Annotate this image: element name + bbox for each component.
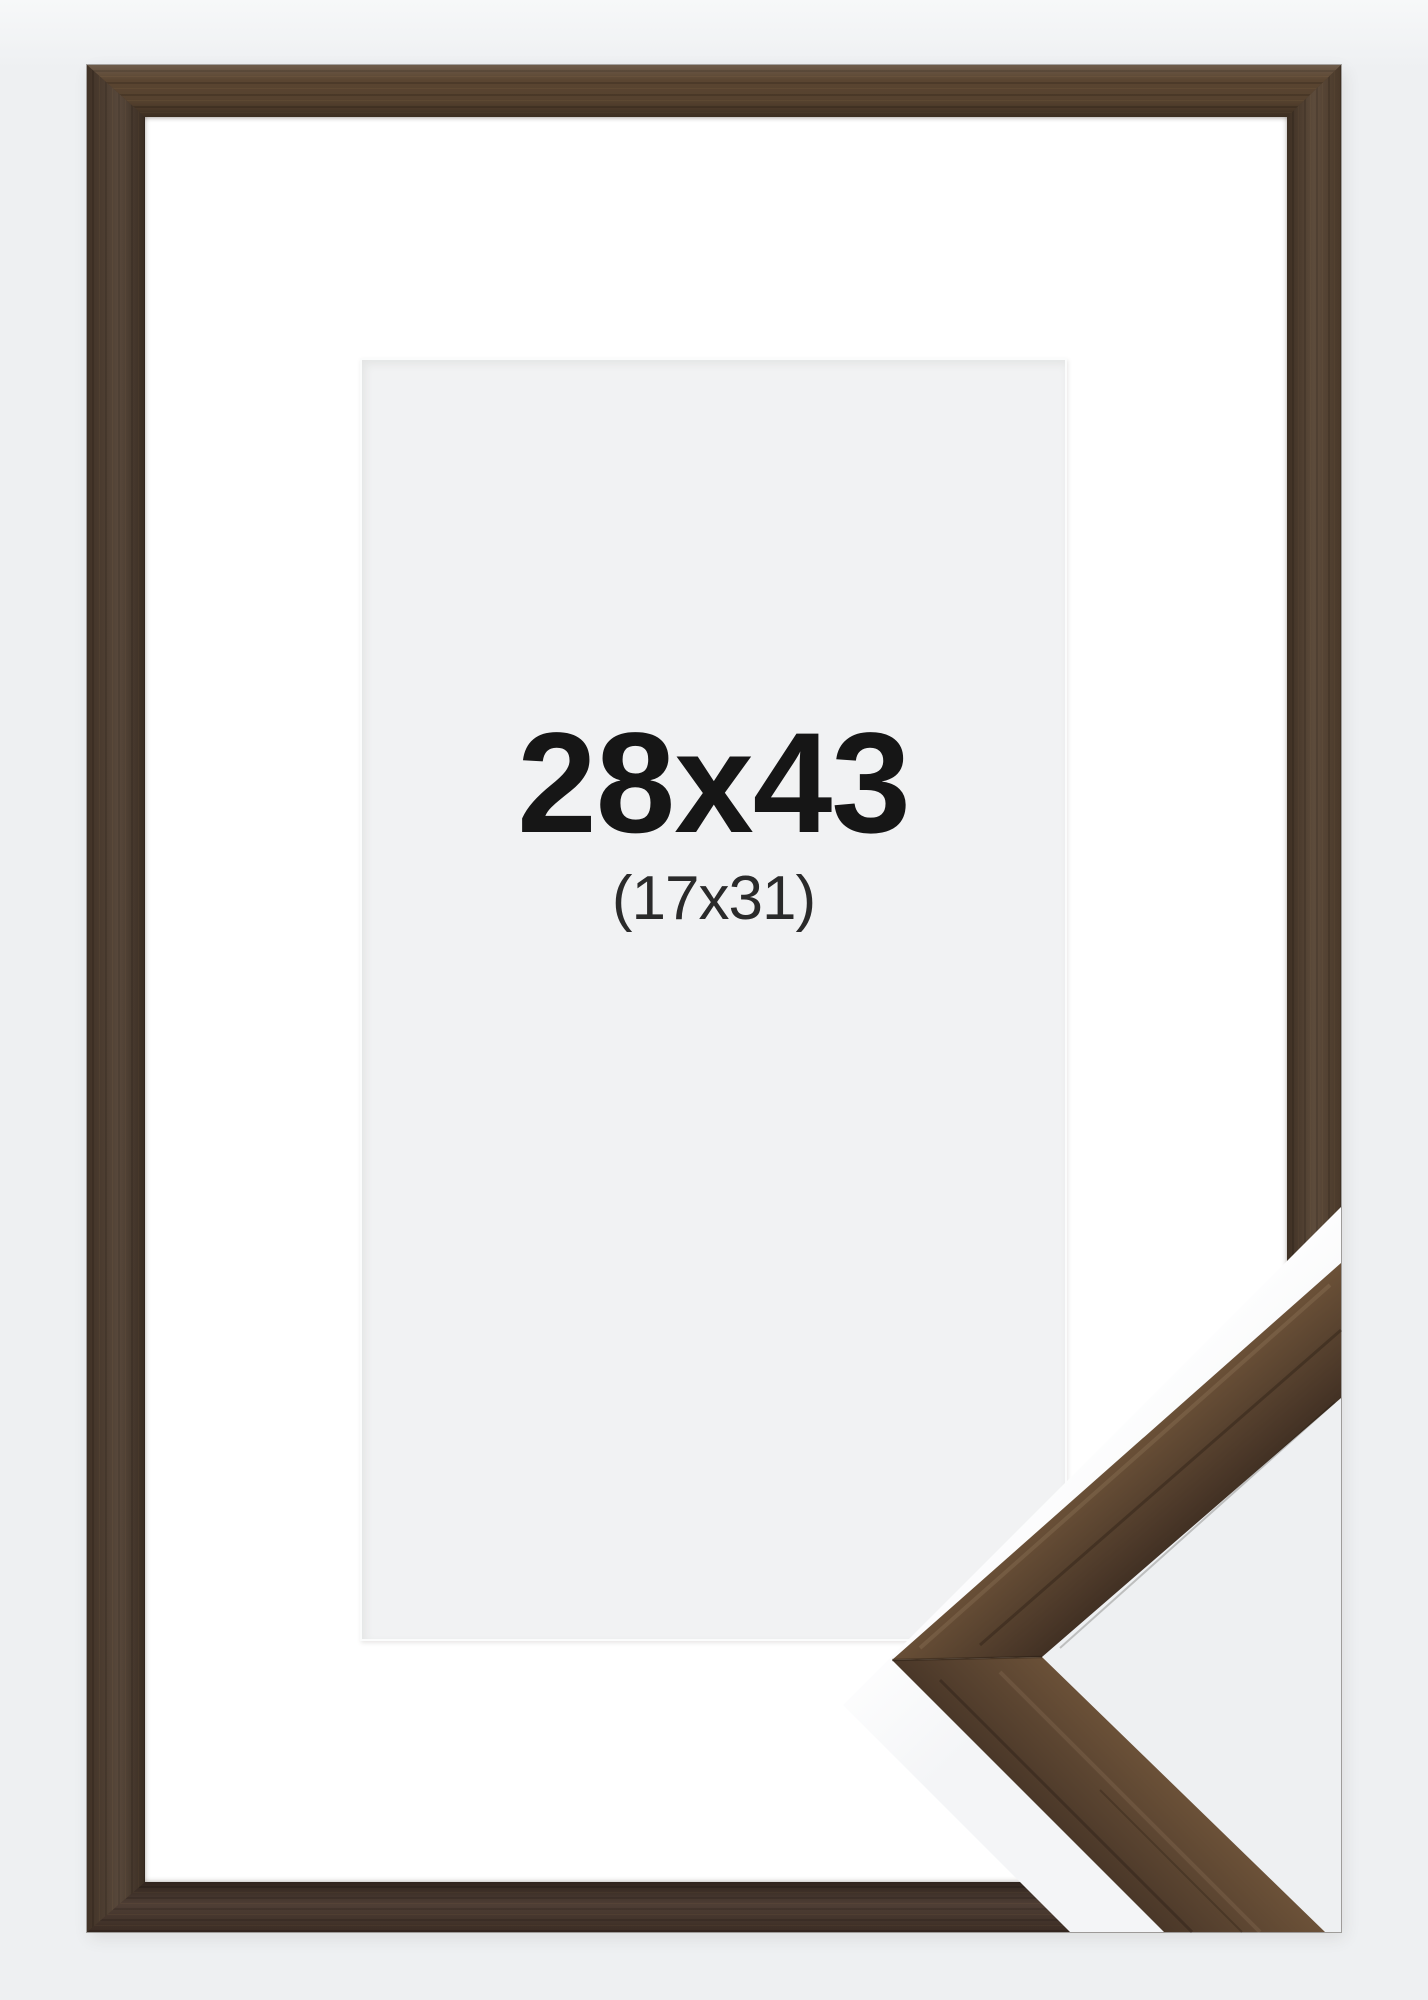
product-image: 28x43 (17x31) bbox=[0, 0, 1428, 2000]
corner-sample-overlay bbox=[0, 0, 1428, 2000]
